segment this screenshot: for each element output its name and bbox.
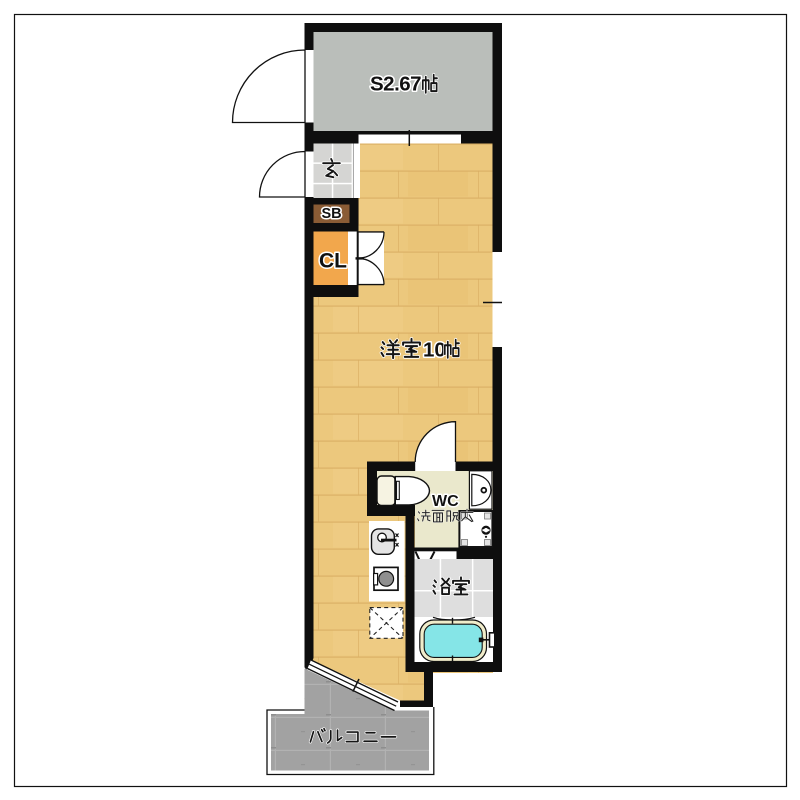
- svg-text:CL: CL: [319, 250, 347, 273]
- svg-text:10: 10: [423, 339, 446, 362]
- svg-text:WC: WC: [432, 493, 459, 510]
- svg-text:SB: SB: [322, 206, 342, 222]
- svg-text:S2.67: S2.67: [370, 73, 421, 96]
